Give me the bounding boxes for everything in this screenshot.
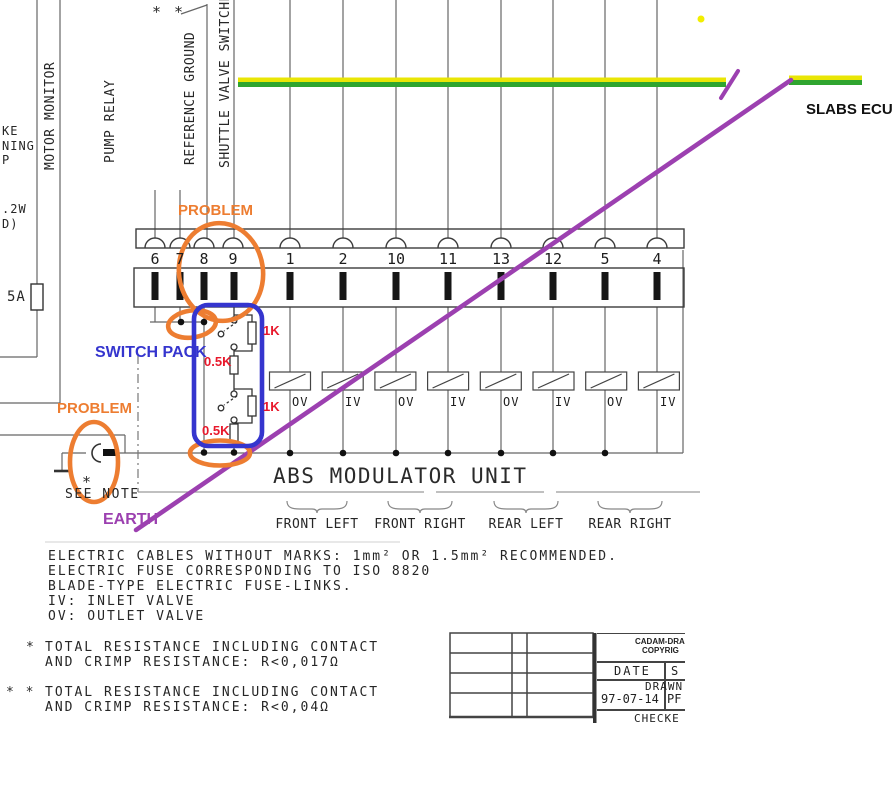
pin-number: 7 [168,250,192,268]
abs-modulator-title: ABS MODULATOR UNIT [273,464,528,488]
double-asterisk-note-marker: * * [152,3,185,21]
title-block-date-value: 97-07-14 [601,692,659,706]
pin-number: 11 [436,250,460,268]
channel-braces [287,501,662,513]
left-fragment-3: P [2,153,10,167]
star2-line2: AND CRIMP RESISTANCE: R<0,04Ω [45,700,330,715]
left-fragment-2: NING [2,139,35,153]
title-block-date-label: DATE [614,664,651,678]
earth-label: EARTH [103,511,158,529]
note-line: OV: OUTLET VALVE [48,609,205,624]
left-fragment-1: KE [2,124,18,138]
valve-boxes [270,372,680,390]
junction-dots [178,319,609,457]
slabs-ecu-label: SLABS ECU [806,101,893,118]
problem-label-left: PROBLEM [57,400,132,417]
title-block-divider-bar [593,633,597,723]
earth-wire [238,16,862,88]
pin-number: 2 [331,250,355,268]
pin-number: 10 [384,250,408,268]
label-pump-relay: PUMP RELAY [103,80,118,163]
title-block-grid [449,633,593,717]
see-note-label: SEE NOTE [65,487,140,502]
yellow-dot [698,16,705,23]
fuse-symbol [31,284,43,310]
note-line: BLADE-TYPE ELECTRIC FUSE-LINKS. [48,579,353,594]
valve-label: OV [292,395,308,409]
note-line: IV: INLET VALVE [48,594,195,609]
resistor-value-1k-lower: 1K [263,399,280,414]
pin-number: 4 [645,250,669,268]
resistor-value-1k-upper: 1K [263,323,280,338]
pin-number: 13 [489,250,513,268]
star1-marker: * [26,640,36,655]
earth-connector-symbol [54,444,117,471]
resistor-value-05k-upper: 0.5K [204,354,231,369]
pin-number: 6 [143,250,167,268]
problem-label-top: PROBLEM [178,202,253,219]
label-reference-ground: REFERENCE GROUND [183,32,198,165]
note-line: ELECTRIC FUSE CORRESPONDING TO ISO 8820 [48,564,431,579]
wiring-diagram-page: MOTOR MONITOR PUMP RELAY REFERENCE GROUN… [0,0,896,800]
label-shuttle-valve-switches: SHUTTLE VALVE SWITCHES [218,0,233,168]
pin-number: 1 [278,250,302,268]
valve-label: IV [450,395,466,409]
switch-pack-label: SWITCH PACK [95,344,207,362]
pin-number: 9 [221,250,245,268]
left-fragment-4: .2W [2,202,27,216]
pin-number: 12 [541,250,565,268]
channel-label: REAR RIGHT [565,517,695,532]
left-fragment-5: D) [2,217,18,231]
star2-marker: * * [6,685,35,700]
title-block-line [597,709,685,711]
title-block-checked-label: CHECKE [634,712,680,724]
title-block-s: S [671,664,678,678]
valve-label: OV [398,395,414,409]
note-line: ELECTRIC CABLES WITHOUT MARKS: 1mm² OR 1… [48,549,618,564]
title-block-copyright: COPYRIG [642,646,679,655]
star1-line2: AND CRIMP RESISTANCE: R<0,017Ω [45,655,340,670]
valve-label: OV [503,395,519,409]
valve-label: IV [345,395,361,409]
title-block: CADAM-DRA COPYRIG DATE S DRAWN 97-07-14 … [597,633,685,724]
title-block-pf: PF [667,692,681,706]
star2-line1: TOTAL RESISTANCE INCLUDING CONTACT [45,685,379,700]
title-block-cadam: CADAM-DRA [635,637,685,646]
valve-label: IV [555,395,571,409]
label-motor-monitor: MOTOR MONITOR [43,62,58,170]
pin-number: 5 [593,250,617,268]
resistor-value-05k-lower: 0.5K [202,423,229,438]
star1-line1: TOTAL RESISTANCE INCLUDING CONTACT [45,640,379,655]
fuse-rating-label: 5A [7,289,26,305]
valve-label: OV [607,395,623,409]
valve-label: IV [660,395,676,409]
connector-pin-bars [152,272,661,300]
pin-number: 8 [192,250,216,268]
title-block-line [597,661,685,663]
diagram-linework [0,0,896,800]
